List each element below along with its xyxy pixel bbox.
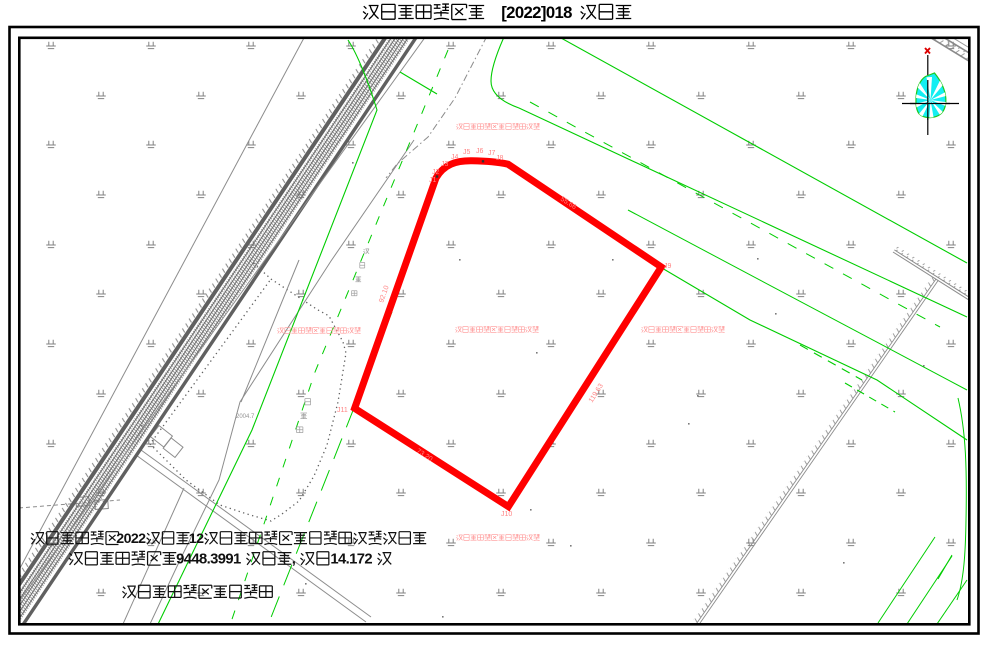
svg-text:J7: J7 [488,150,496,157]
svg-text:J10: J10 [501,511,512,518]
svg-text:[2022]018: [2022]018 [501,3,572,22]
svg-text:J9: J9 [664,263,672,270]
svg-text:12: 12 [189,531,204,547]
svg-text:J1: J1 [429,177,437,184]
svg-text:J4: J4 [451,154,459,161]
svg-text:J11: J11 [337,407,348,414]
svg-text:9448.3991: 9448.3991 [176,552,241,568]
svg-text:2004.7: 2004.7 [236,414,255,420]
svg-text:2022: 2022 [116,531,146,547]
svg-text:J8: J8 [496,155,504,162]
svg-text:,: , [292,552,296,568]
svg-text:J2: J2 [432,169,440,176]
svg-text:J5: J5 [463,149,471,156]
svg-text:J6: J6 [476,148,484,155]
svg-text:J3: J3 [441,161,449,168]
svg-text:14.172: 14.172 [330,552,372,568]
